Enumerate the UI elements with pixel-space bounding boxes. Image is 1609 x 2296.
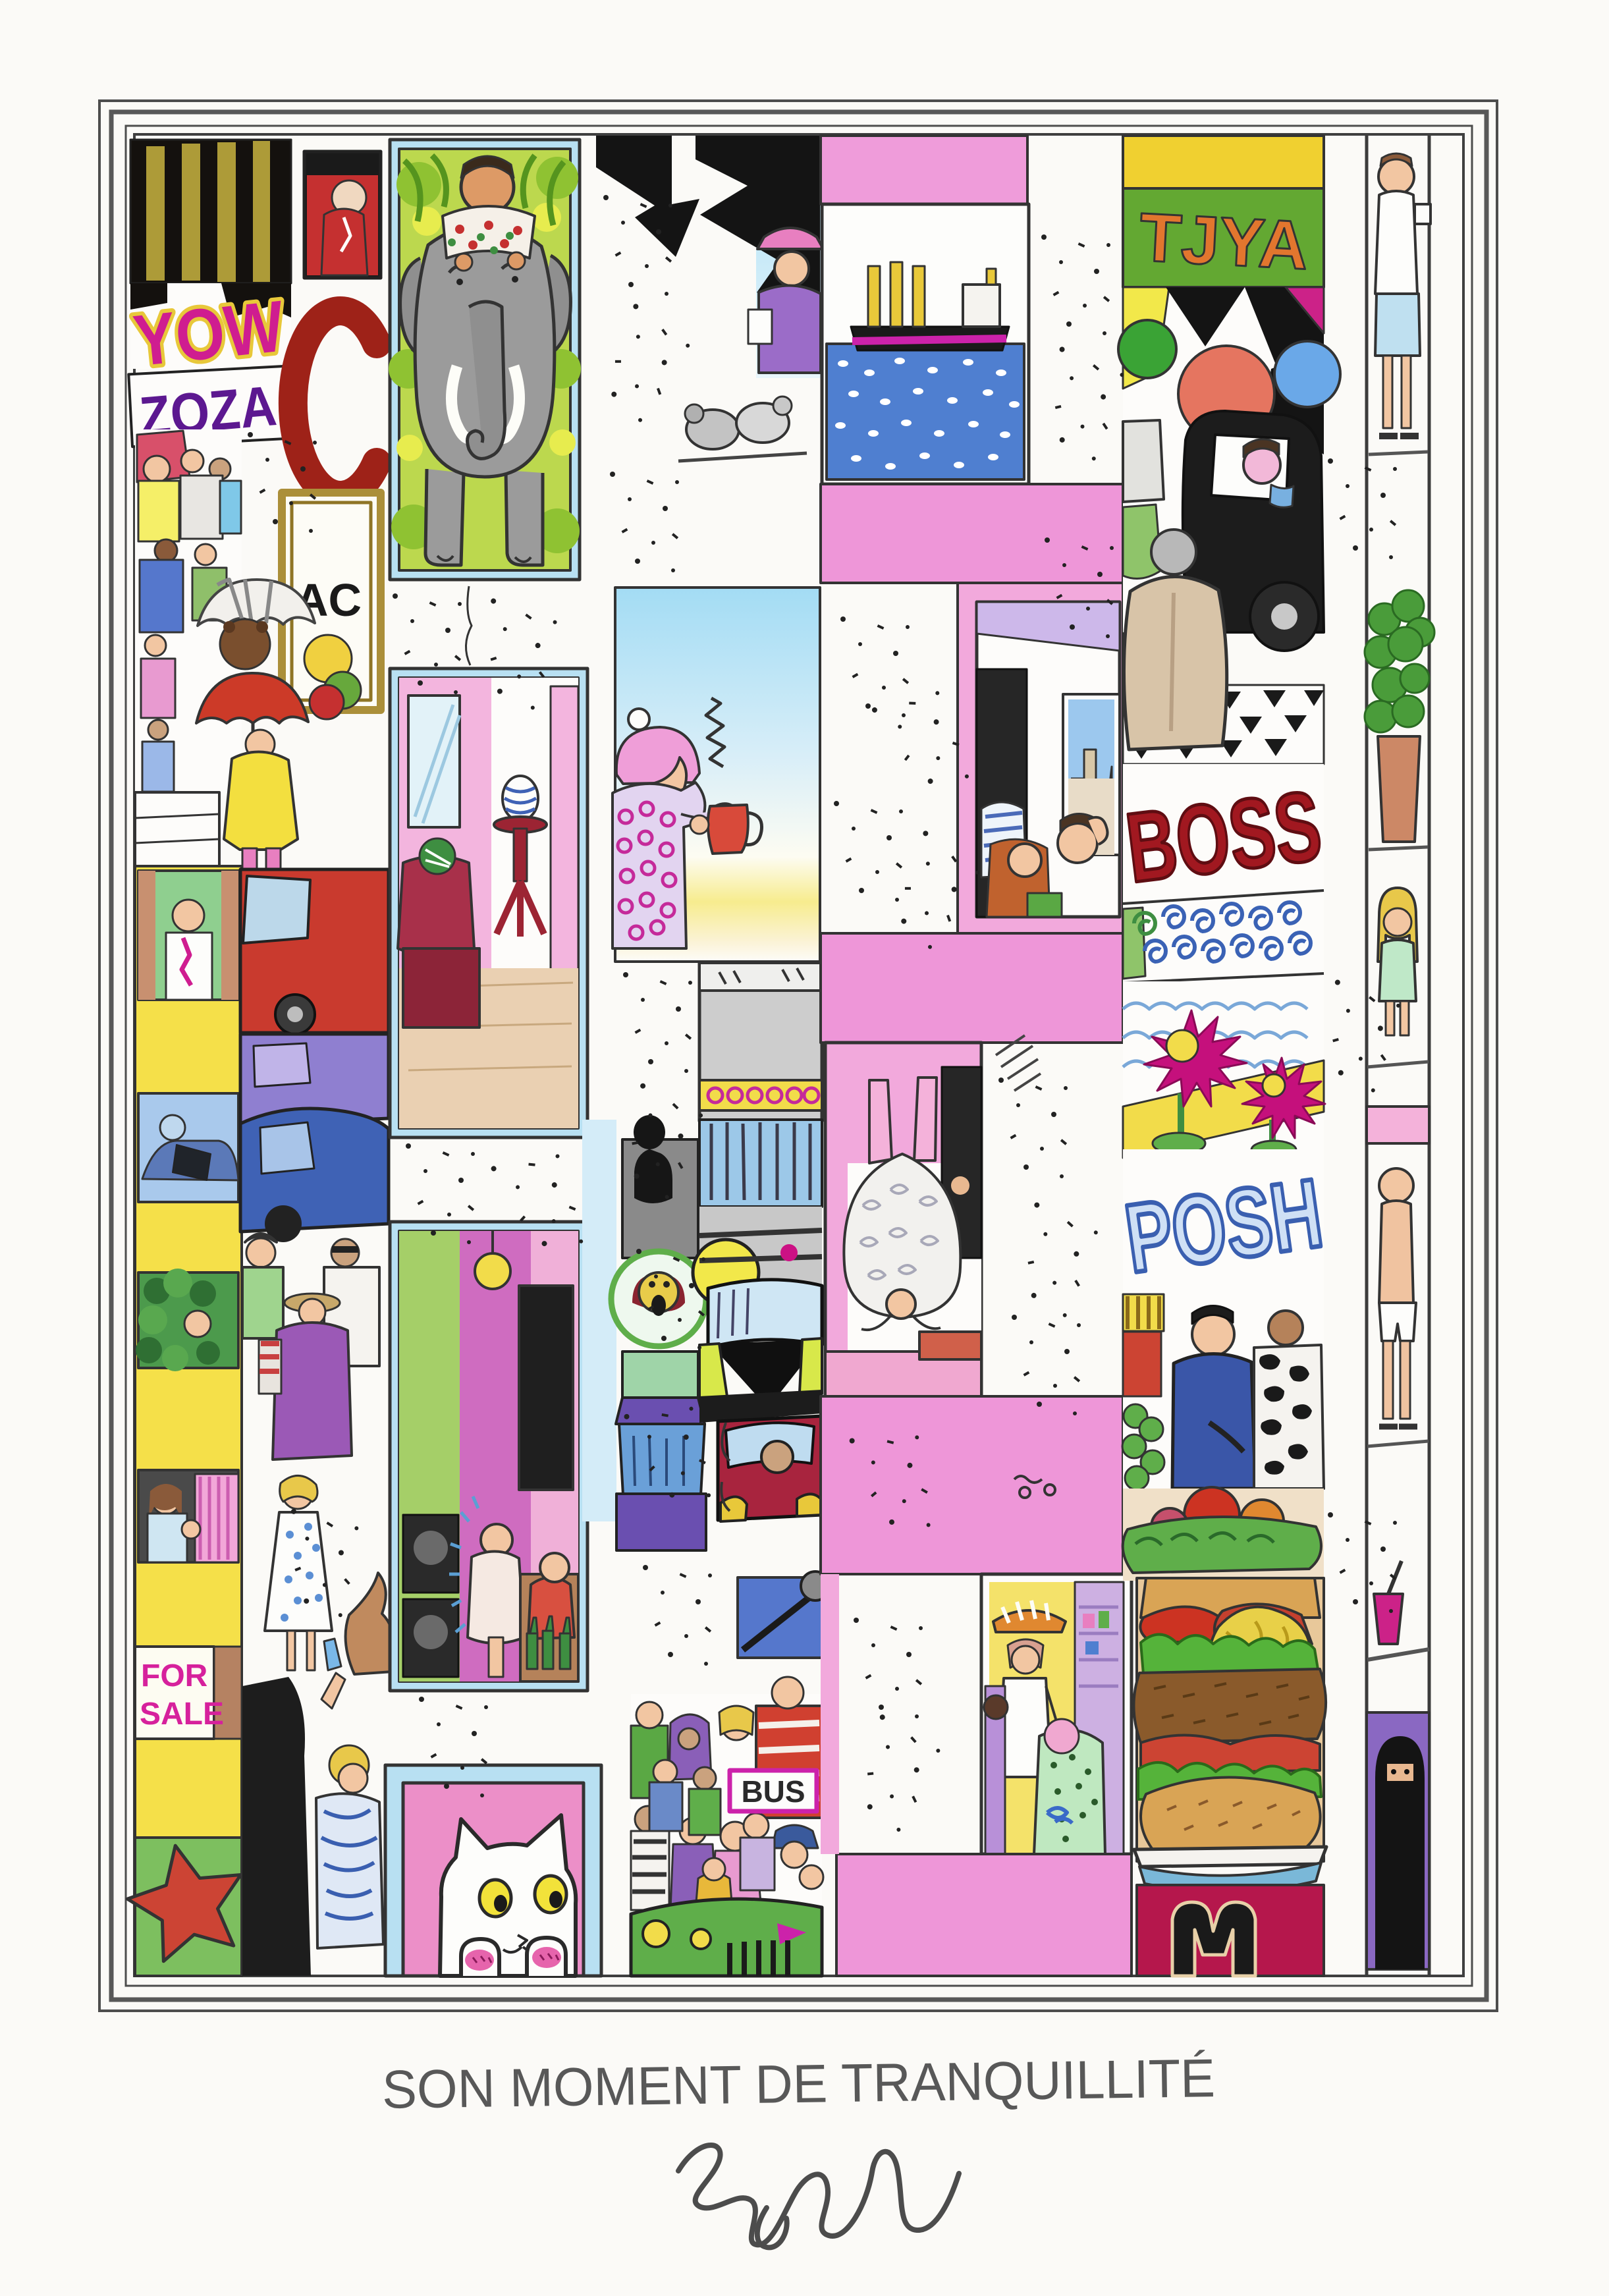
svg-text:BUS: BUS	[741, 1774, 805, 1809]
svg-text:SON MOMENT DE TRANQUILLITÉ: SON MOMENT DE TRANQUILLITÉ	[381, 2048, 1215, 2120]
svg-text:TJYA: TJYA	[1137, 199, 1310, 284]
svg-text:BOSS: BOSS	[1120, 770, 1326, 904]
svg-text:FOR: FOR	[141, 1658, 207, 1693]
svg-text:SALE: SALE	[140, 1697, 224, 1732]
